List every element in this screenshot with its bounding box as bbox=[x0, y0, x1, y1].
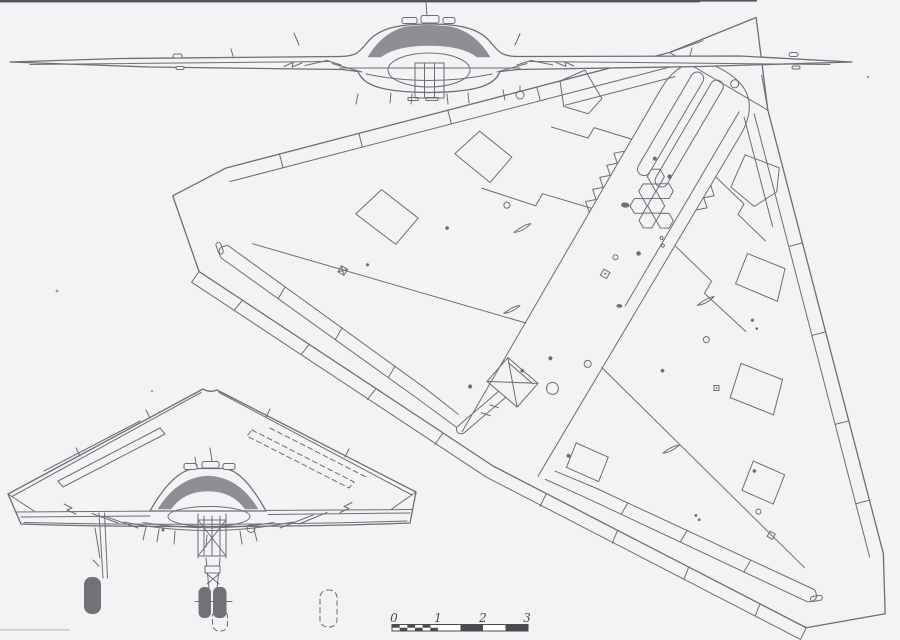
nose-wheel-right bbox=[213, 587, 227, 618]
speck bbox=[867, 76, 869, 78]
plan-outline bbox=[137, 0, 900, 640]
scale-label-3: 3 bbox=[523, 611, 531, 625]
speck bbox=[56, 290, 59, 293]
front-view-landing-gear bbox=[8, 389, 416, 631]
scanned-drawing-page: 0 1 2 3 bbox=[0, 0, 900, 640]
plan-view bbox=[130, 0, 900, 640]
scale-bar: 0 1 2 3 bbox=[390, 611, 531, 631]
three-view-drawing: 0 1 2 3 bbox=[0, 0, 900, 640]
tiny-square-dot bbox=[716, 387, 718, 389]
scale-label-0: 0 bbox=[390, 611, 398, 625]
speck bbox=[151, 390, 153, 392]
dorsal-fairings bbox=[402, 16, 455, 24]
scale-label-2: 2 bbox=[478, 611, 487, 625]
dorsal-antenna bbox=[426, 3, 427, 16]
main-wheel-left bbox=[84, 577, 101, 614]
main-wheel-right-ghost bbox=[320, 590, 337, 627]
belly-dot bbox=[162, 529, 165, 532]
scan-edge-fade bbox=[700, 0, 757, 2]
scale-label-1: 1 bbox=[434, 611, 442, 625]
nose-gear-collar bbox=[205, 566, 220, 573]
main-gear-left bbox=[84, 513, 108, 614]
nose-gear bbox=[195, 514, 232, 631]
scan-artifact-top bbox=[0, 0, 757, 2]
scan-smudge bbox=[0, 629, 70, 631]
nose-wheel-left bbox=[199, 587, 212, 618]
scan-edge bbox=[0, 0, 700, 2]
